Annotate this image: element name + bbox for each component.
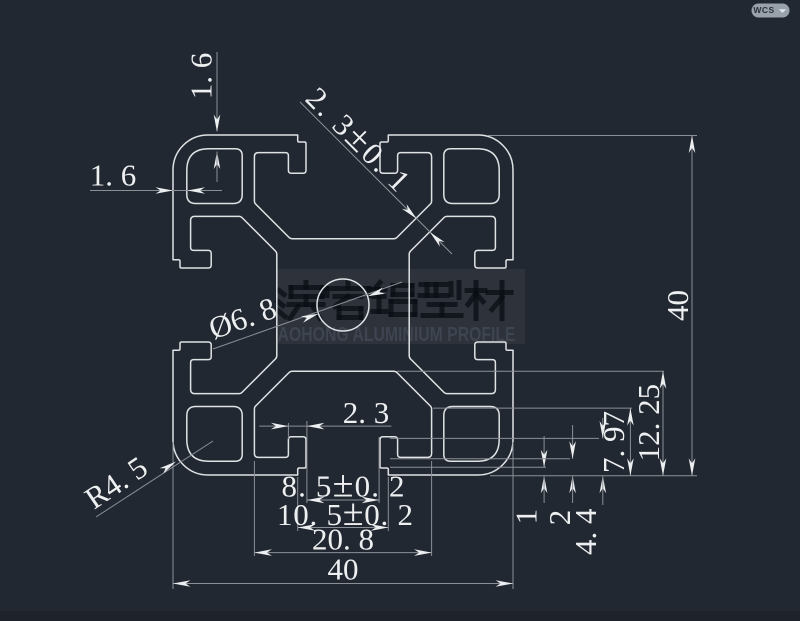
svg-text:WCS: WCS (753, 5, 774, 15)
svg-text:2. 3: 2. 3 (343, 395, 390, 430)
svg-text:8. 5±0. 2: 8. 5±0. 2 (282, 464, 405, 506)
svg-text:40: 40 (660, 290, 695, 321)
svg-text:12. 25: 12. 25 (631, 384, 666, 462)
svg-text:7. 97: 7. 97 (596, 411, 631, 473)
svg-text:1: 1 (509, 509, 544, 525)
svg-text:1. 6: 1. 6 (90, 158, 137, 193)
svg-text:4. 4: 4. 4 (568, 508, 603, 555)
svg-text:40: 40 (328, 552, 359, 587)
svg-text:1. 6: 1. 6 (184, 53, 219, 100)
